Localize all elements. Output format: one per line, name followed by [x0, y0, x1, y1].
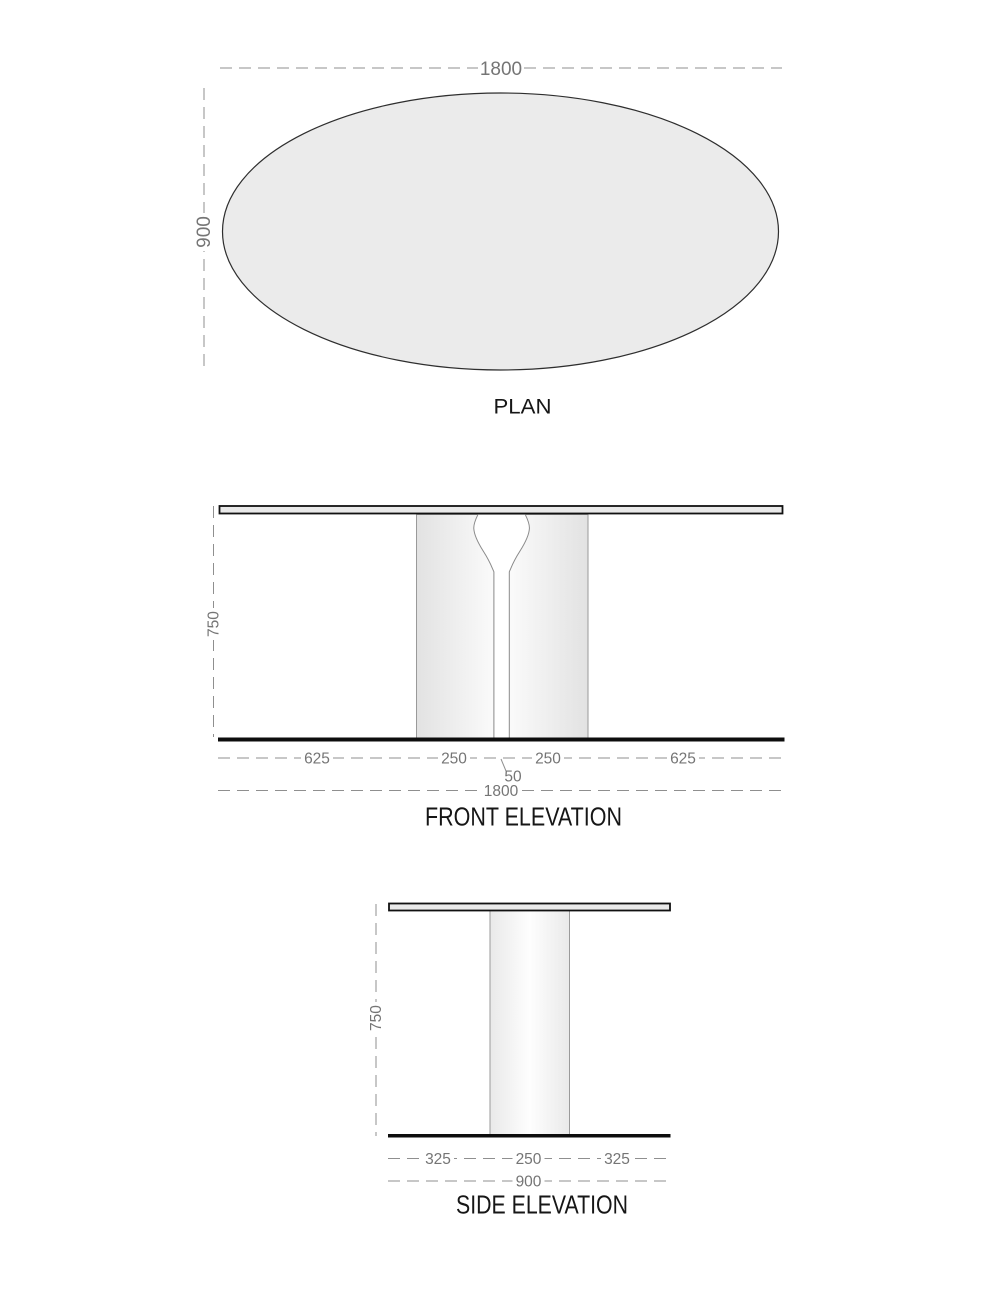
svg-text:625: 625 — [670, 751, 696, 768]
svg-text:1800: 1800 — [484, 783, 519, 800]
svg-text:325: 325 — [425, 1151, 451, 1168]
svg-text:750: 750 — [368, 1005, 385, 1031]
svg-text:750: 750 — [206, 611, 223, 637]
svg-text:250: 250 — [441, 751, 467, 768]
svg-text:250: 250 — [535, 751, 561, 768]
svg-text:PLAN: PLAN — [494, 396, 552, 419]
svg-text:1800: 1800 — [480, 59, 522, 80]
svg-text:625: 625 — [304, 751, 330, 768]
svg-text:900: 900 — [194, 216, 215, 248]
svg-text:325: 325 — [604, 1151, 630, 1168]
svg-text:900: 900 — [516, 1174, 542, 1191]
svg-text:FRONT ELEVATION: FRONT ELEVATION — [425, 802, 622, 832]
svg-text:SIDE ELEVATION: SIDE ELEVATION — [456, 1190, 628, 1220]
svg-text:250: 250 — [516, 1151, 542, 1168]
